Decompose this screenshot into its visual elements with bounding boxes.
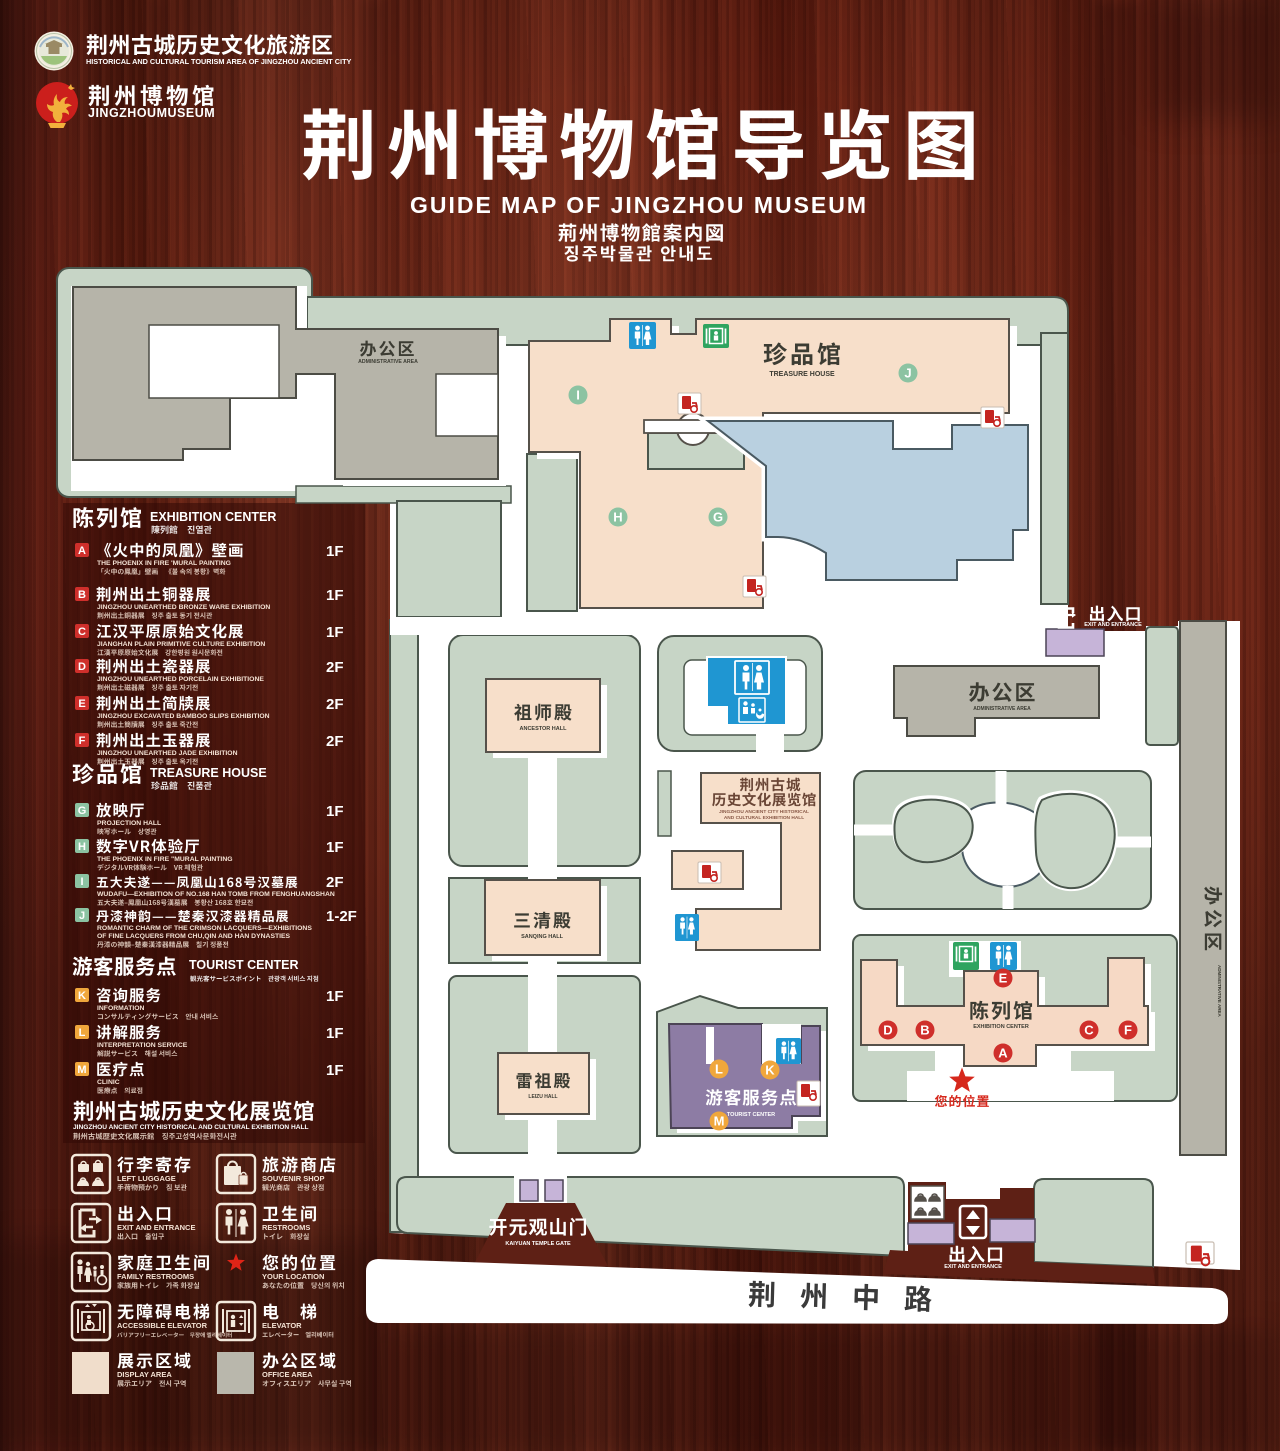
svg-text:ADMINISTRATIVE AREA: ADMINISTRATIVE AREA — [1217, 965, 1222, 1018]
svg-text:INFORMATION: INFORMATION — [97, 1005, 145, 1012]
svg-text:THE PHOENIX IN FIRE 'MURAL PAI: THE PHOENIX IN FIRE 'MURAL PAINTING — [97, 560, 231, 567]
svg-text:G: G — [713, 510, 723, 525]
svg-text:D: D — [883, 1023, 892, 1038]
svg-text:HISTORICAL AND CULTURAL TOURIS: HISTORICAL AND CULTURAL TOURISM AREA OF … — [86, 57, 352, 66]
svg-text:2F: 2F — [326, 696, 344, 713]
svg-text:L: L — [79, 1027, 86, 1039]
svg-text:JIANGHAN PLAIN PRIMITIVE CULTU: JIANGHAN PLAIN PRIMITIVE CULTURE EXHIBIT… — [97, 641, 265, 648]
svg-text:F: F — [1124, 1023, 1132, 1038]
svg-text:B: B — [920, 1023, 929, 1038]
svg-text:AND CULTURAL EXHIBITION HALL: AND CULTURAL EXHIBITION HALL — [724, 815, 804, 821]
svg-text:SANQING HALL: SANQING HALL — [521, 934, 564, 940]
svg-text:F: F — [79, 735, 86, 747]
svg-text:ADMINISTRATIVE AREA: ADMINISTRATIVE AREA — [973, 706, 1031, 712]
svg-text:TOURIST CENTER: TOURIST CENTER — [727, 1112, 775, 1118]
svg-text:2F: 2F — [326, 874, 344, 891]
svg-text:2F: 2F — [326, 659, 344, 676]
svg-text:E: E — [999, 971, 1008, 986]
svg-text:H: H — [613, 510, 622, 525]
svg-text:ELEVATOR: ELEVATOR — [262, 1321, 302, 1330]
svg-text:ROMANTIC CHARM OF THE CRIMSON: ROMANTIC CHARM OF THE CRIMSON LACQUERS—E… — [97, 925, 312, 932]
svg-text:LEFT LUGGAGE: LEFT LUGGAGE — [117, 1174, 176, 1183]
svg-text:C: C — [1084, 1023, 1094, 1038]
svg-text:B: B — [78, 589, 86, 601]
svg-text:SOUVENIR SHOP: SOUVENIR SHOP — [262, 1174, 325, 1183]
svg-text:EXHIBITION CENTER: EXHIBITION CENTER — [973, 1024, 1029, 1030]
svg-text:JINGZHOU ANCIENT CITY HISTORIC: JINGZHOU ANCIENT CITY HISTORICAL AND CUL… — [73, 1124, 309, 1131]
svg-text:JINGZHOU ANCIENT CITY HISTORIC: JINGZHOU ANCIENT CITY HISTORICAL — [719, 809, 809, 815]
svg-text:GUIDE MAP OF JINGZHOU MUSEUM: GUIDE MAP OF JINGZHOU MUSEUM — [410, 192, 868, 218]
svg-text:PROJECTION HALL: PROJECTION HALL — [97, 820, 161, 827]
svg-text:ACCESSIBLE ELEVATOR: ACCESSIBLE ELEVATOR — [117, 1321, 208, 1330]
svg-text:I: I — [80, 876, 83, 888]
svg-text:JINGZHOUMUSEUM: JINGZHOUMUSEUM — [88, 106, 215, 120]
svg-text:E: E — [78, 698, 85, 710]
svg-text:1F: 1F — [326, 543, 344, 560]
svg-text:OFFICE AREA: OFFICE AREA — [262, 1370, 313, 1379]
svg-text:ADMINISTRATIVE AREA: ADMINISTRATIVE AREA — [358, 359, 418, 365]
svg-text:D: D — [78, 661, 86, 673]
svg-text:1F: 1F — [326, 587, 344, 604]
svg-text:EXIT AND ENTRANCE: EXIT AND ENTRANCE — [1084, 622, 1142, 628]
svg-text:J: J — [904, 366, 911, 381]
svg-text:1F: 1F — [326, 624, 344, 641]
svg-text:THE PHOENIX IN FIRE "MURAL PAI: THE PHOENIX IN FIRE "MURAL PAINTING — [97, 856, 233, 863]
svg-text:L: L — [715, 1062, 723, 1077]
svg-text:TOURIST CENTER: TOURIST CENTER — [189, 958, 299, 972]
svg-text:RESTROOMS: RESTROOMS — [262, 1223, 310, 1232]
svg-text:K: K — [765, 1063, 775, 1078]
svg-text:1F: 1F — [326, 1062, 344, 1079]
svg-text:TREASURE HOUSE: TREASURE HOUSE — [769, 371, 835, 378]
svg-text:JINGZHOU UNEARTHED JADE EXHIBI: JINGZHOU UNEARTHED JADE EXHIBITION — [97, 750, 238, 757]
svg-text:A: A — [78, 545, 86, 557]
svg-text:A: A — [998, 1046, 1008, 1061]
svg-text:JINGZHOU UNEARTHED BRONZE WARE: JINGZHOU UNEARTHED BRONZE WARE EXHIBITIO… — [97, 604, 270, 611]
svg-text:KAIYUAN TEMPLE GATE: KAIYUAN TEMPLE GATE — [505, 1241, 571, 1247]
svg-text:TREASURE HOUSE: TREASURE HOUSE — [150, 766, 267, 780]
svg-text:1F: 1F — [326, 988, 344, 1005]
svg-text:CLINIC: CLINIC — [97, 1079, 120, 1086]
svg-text:LEIZU HALL: LEIZU HALL — [528, 1094, 557, 1100]
svg-text:G: G — [78, 805, 87, 817]
svg-text:ANCESTOR HALL: ANCESTOR HALL — [520, 726, 568, 732]
svg-text:M: M — [77, 1064, 86, 1076]
svg-text:M: M — [714, 1114, 725, 1129]
svg-text:FAMILY RESTROOMS: FAMILY RESTROOMS — [117, 1272, 194, 1281]
svg-text:EXHIBITION CENTER: EXHIBITION CENTER — [150, 510, 276, 524]
svg-text:EXIT AND ENTRANCE: EXIT AND ENTRANCE — [117, 1223, 195, 1232]
svg-text:OF FINE LACQUERS FROM CHU,QIN: OF FINE LACQUERS FROM CHU,QIN AND HAN DY… — [97, 933, 291, 940]
svg-text:1-2F: 1-2F — [326, 908, 357, 925]
svg-text:WUDAFU—EXHIBITION OF NO.168 HA: WUDAFU—EXHIBITION OF NO.168 HAN TOMB FRO… — [97, 891, 335, 898]
svg-text:K: K — [78, 990, 86, 1002]
svg-text:H: H — [78, 841, 86, 853]
svg-text:YOUR LOCATION: YOUR LOCATION — [262, 1272, 324, 1281]
svg-text:2F: 2F — [326, 733, 344, 750]
svg-text:INTERPRETATION SERVICE: INTERPRETATION SERVICE — [97, 1042, 188, 1049]
svg-text:I: I — [576, 388, 580, 403]
svg-text:EXIT AND ENTRANCE: EXIT AND ENTRANCE — [944, 1264, 1002, 1270]
svg-text:J: J — [79, 910, 85, 922]
svg-text:JINGZHOU UNEARTHED PORCELAIN E: JINGZHOU UNEARTHED PORCELAIN EXHIBITIONE — [97, 676, 264, 683]
svg-text:1F: 1F — [326, 803, 344, 820]
svg-text:C: C — [78, 626, 86, 638]
svg-text:1F: 1F — [326, 1025, 344, 1042]
svg-text:DISPLAY AREA: DISPLAY AREA — [117, 1370, 172, 1379]
svg-text:JINGZHOU EXCAVATED BAMBOO SLIP: JINGZHOU EXCAVATED BAMBOO SLIPS EXHIBITI… — [97, 713, 270, 720]
svg-text:1F: 1F — [326, 839, 344, 856]
